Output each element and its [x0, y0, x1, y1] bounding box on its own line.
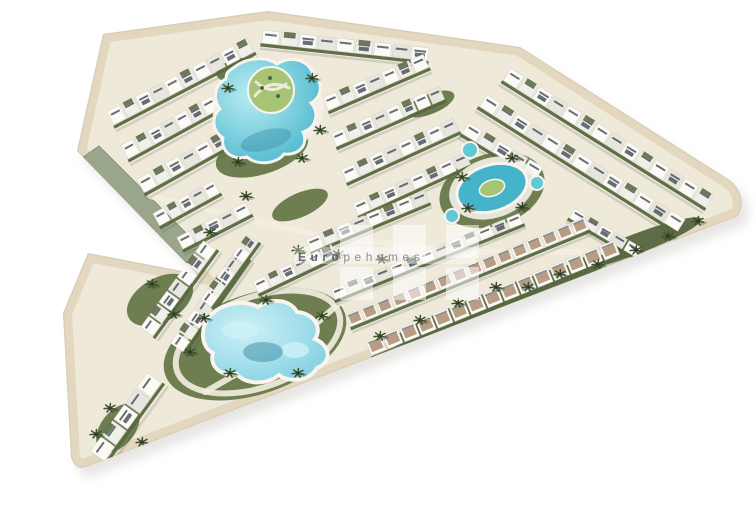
watermark-block	[446, 267, 479, 300]
shallow-water-patch	[281, 342, 309, 358]
terrace-roof	[425, 285, 435, 289]
palm-crown	[558, 272, 561, 275]
window-band	[414, 51, 426, 52]
window-band	[340, 43, 352, 44]
round-plunge-pool	[462, 142, 478, 158]
island-shrub	[268, 76, 272, 80]
watermark-text-rest: pehomes	[343, 250, 424, 264]
palm-crown	[666, 234, 669, 237]
palm-crown	[228, 371, 231, 374]
palm-crown	[320, 314, 323, 317]
palm-crown	[236, 160, 239, 163]
terrace-roof	[504, 289, 515, 294]
window-band	[396, 49, 408, 50]
palm-crown	[596, 262, 599, 265]
terrace-roof	[487, 296, 498, 301]
building-unit	[262, 30, 280, 45]
round-plunge-pool	[530, 176, 544, 190]
palm-crown	[696, 219, 699, 222]
roof-garden-strip	[284, 34, 296, 35]
roof-garden-strip	[359, 42, 371, 43]
window-band	[377, 47, 389, 48]
terrace-roof	[404, 330, 415, 335]
terrace-roof	[371, 343, 382, 348]
palm-crown	[264, 298, 267, 301]
terrace-roof	[454, 309, 465, 314]
terrace-roof	[545, 236, 555, 240]
shallow-water-patch	[222, 321, 258, 339]
palm-crown	[318, 128, 321, 131]
palm-crown	[244, 194, 247, 197]
palm-crown	[494, 285, 497, 288]
terrace-roof	[587, 255, 598, 260]
palm-crown	[208, 230, 211, 233]
solar-panel-strip	[303, 42, 313, 43]
palm-crown	[460, 175, 463, 178]
palm-crown	[188, 350, 191, 353]
palm-crown	[310, 76, 313, 79]
window-band	[284, 37, 296, 38]
terrace-roof	[380, 304, 390, 308]
terrace-roof	[437, 316, 448, 321]
watermark-block	[340, 267, 373, 300]
watermark-text-bold: Euro	[298, 250, 343, 264]
palm-crown	[108, 406, 111, 409]
terrace-roof	[571, 262, 582, 267]
watermark-block	[393, 267, 426, 300]
terrace-roof	[365, 310, 375, 314]
palm-crown	[140, 440, 143, 443]
aerial-site-plan-render: Europehomes	[0, 0, 756, 528]
palm-crown	[172, 312, 175, 315]
building-unit	[336, 38, 354, 53]
palm-crown	[226, 86, 229, 89]
palm-crown	[150, 282, 153, 285]
window-band	[358, 45, 370, 46]
terrace-roof	[350, 316, 360, 320]
terrace-roof	[560, 230, 570, 234]
palm-crown	[520, 205, 523, 208]
window-band	[321, 41, 333, 42]
palm-crown	[296, 371, 299, 374]
palm-crown	[456, 301, 459, 304]
island-shrub	[260, 86, 264, 90]
palm-crown	[94, 432, 97, 435]
terrace-roof	[500, 255, 510, 259]
palm-crown	[378, 334, 381, 337]
island-shrub	[276, 94, 280, 98]
terrace-roof	[471, 302, 482, 307]
terrace-roof	[485, 261, 495, 265]
building-unit	[318, 36, 336, 51]
terrace-roof	[530, 242, 540, 246]
palm-shadow-on-water	[243, 342, 283, 362]
terrace-roof	[537, 275, 548, 280]
round-plunge-pool	[445, 209, 459, 223]
palm-crown	[510, 156, 513, 159]
terrace-roof	[387, 336, 398, 341]
building-unit	[392, 44, 410, 59]
palm-crown	[418, 318, 421, 321]
palm-crown	[202, 316, 205, 319]
building-unit	[374, 42, 392, 57]
solar-panel-strip	[359, 48, 369, 49]
window-band	[302, 39, 314, 40]
window-band	[265, 35, 277, 36]
render-canvas: Europehomes	[0, 0, 756, 528]
palm-crown	[526, 285, 529, 288]
terrace-roof	[515, 249, 525, 253]
watermark-text: Europehomes	[298, 250, 424, 264]
palm-crown	[634, 248, 637, 251]
palm-crown	[466, 206, 469, 209]
terrace-roof	[575, 224, 585, 228]
palm-crown	[300, 156, 303, 159]
terrace-roof	[604, 248, 615, 253]
